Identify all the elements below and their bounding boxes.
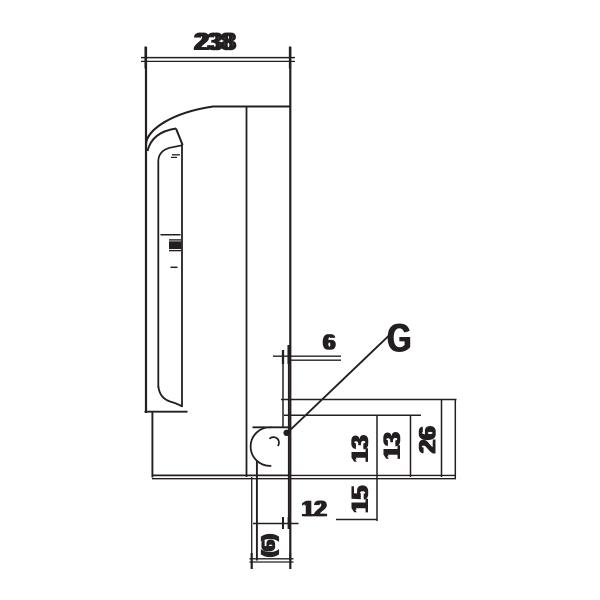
- svg-text:13: 13: [379, 431, 406, 458]
- svg-text:G: G: [388, 317, 412, 361]
- svg-text:13: 13: [347, 434, 374, 461]
- svg-text:(6): (6): [258, 533, 280, 555]
- svg-text:238: 238: [196, 28, 237, 56]
- svg-text:15: 15: [347, 485, 374, 512]
- svg-text:12: 12: [303, 496, 328, 521]
- svg-text:26: 26: [415, 425, 442, 452]
- svg-text:6: 6: [324, 329, 336, 354]
